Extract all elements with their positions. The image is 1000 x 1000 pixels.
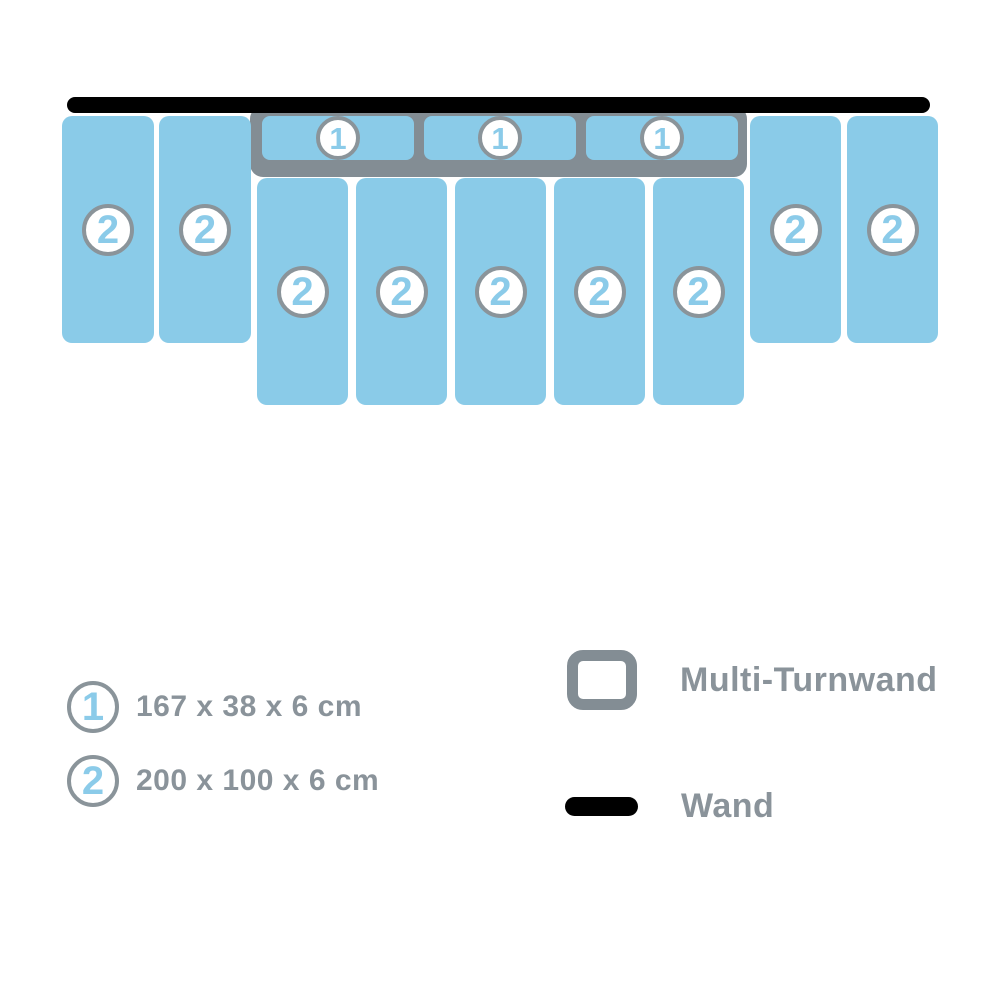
legend-row-type1: 1 167 x 38 x 6 cm [67,681,362,733]
mat-number-badge: 2 [277,266,329,318]
left-mats-group: 22 [62,116,251,343]
mat-type-2: 2 [455,178,546,405]
multi-turnwand-outline-icon [567,650,637,710]
multi-turnwand-label: Multi-Turnwand [680,661,938,700]
mat-number-badge: 2 [475,266,527,318]
legend-row-wand: Wand [565,776,774,836]
mat-number-badge: 1 [316,116,360,160]
mat-number-badge: 2 [82,204,134,256]
mat-layout-diagram: 111 22 22222 22 [0,0,1000,500]
type2-number-badge: 2 [67,755,119,807]
mat-number-badge: 1 [478,116,522,160]
type1-number-badge: 1 [67,681,119,733]
mat-type-2: 2 [847,116,938,343]
right-mats-group: 22 [750,116,938,343]
mat-type-2: 2 [554,178,645,405]
legend-row-multi-turnwand: Multi-Turnwand [567,650,938,710]
mat-number-badge: 2 [179,204,231,256]
mat-type-2: 2 [750,116,841,343]
wall-bar [67,97,930,113]
mat-number-badge: 2 [867,204,919,256]
mat-type-2: 2 [62,116,154,343]
wand-label: Wand [681,787,774,826]
mat-number-badge: 1 [640,116,684,160]
mat-plan-canvas: 111 22 22222 22 1 167 x 38 x 6 cm 2 200 … [0,0,1000,1000]
multi-turnwand-mats-group: 111 [262,116,738,160]
mat-number-badge: 2 [376,266,428,318]
mat-type-2: 2 [653,178,744,405]
mat-number-badge: 2 [770,204,822,256]
legend-row-type2: 2 200 x 100 x 6 cm [67,755,379,807]
type2-dimensions-label: 200 x 100 x 6 cm [136,764,379,798]
middle-mats-group: 22222 [257,178,744,405]
mat-number-badge: 2 [673,266,725,318]
mat-type-1: 1 [586,116,738,160]
mat-number-badge: 2 [574,266,626,318]
mat-type-2: 2 [159,116,251,343]
wand-bar-icon [565,797,638,816]
mat-type-1: 1 [262,116,414,160]
mat-type-2: 2 [356,178,447,405]
mat-type-2: 2 [257,178,348,405]
mat-type-1: 1 [424,116,576,160]
type1-dimensions-label: 167 x 38 x 6 cm [136,690,362,724]
